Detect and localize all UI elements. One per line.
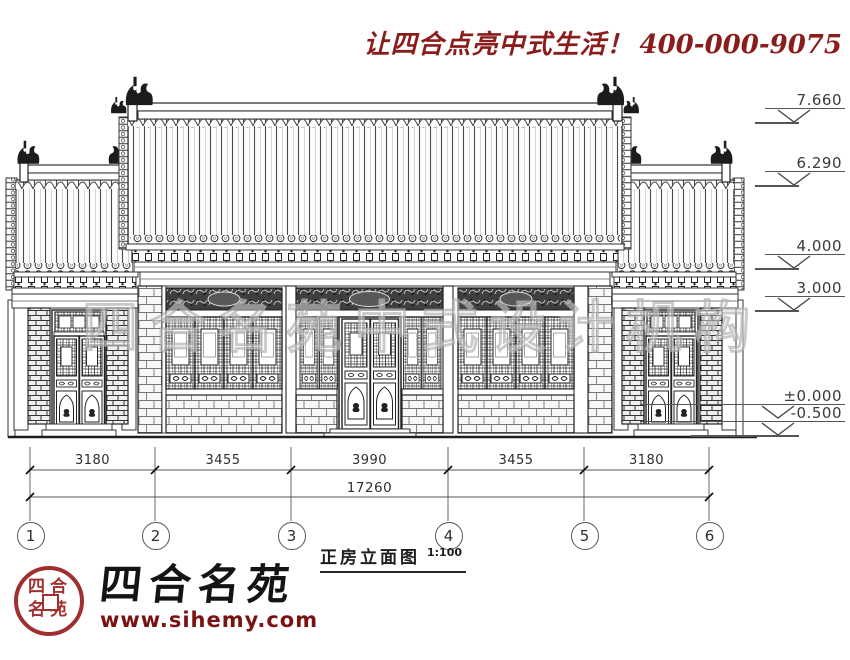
dim-segment: 3990 <box>291 453 448 468</box>
footer-logo: 四合名苑 四合名苑 www.sihemy.com <box>14 558 318 636</box>
caption-underline <box>320 571 466 573</box>
grid-bubble-5: 5 <box>571 522 599 550</box>
website-link[interactable]: www.sihemy.com <box>100 608 318 632</box>
grid-bubble-3: 3 <box>278 522 306 550</box>
brand-name: 四合名苑 <box>98 564 321 606</box>
grid-bubble-1: 1 <box>17 522 45 550</box>
page: 四合名苑中式设计机构 让四合点亮中式生活！400-000-9075 7.660 … <box>0 0 850 660</box>
dim-total: 17260 <box>30 480 709 496</box>
grid-bubble-6: 6 <box>696 522 724 550</box>
phone-number: 400-000-9075 <box>640 30 843 60</box>
seal-icon: 四合名苑 <box>14 566 84 636</box>
seal-center-square <box>42 594 59 611</box>
caption-title: 正房立面图 <box>320 543 420 568</box>
drawing-caption: 正房立面图 1:100 <box>320 543 466 573</box>
dim-segment: 3455 <box>155 453 291 468</box>
dim-segment: 3455 <box>448 453 584 468</box>
grid-bubble-2: 2 <box>142 522 170 550</box>
slogan-text: 让四合点亮中式生活！ <box>363 30 633 60</box>
dim-segment: 3180 <box>584 453 709 468</box>
caption-scale: 1:100 <box>427 543 462 559</box>
header-slogan: 让四合点亮中式生活！400-000-9075 <box>363 24 842 61</box>
dim-segment: 3180 <box>30 453 155 468</box>
